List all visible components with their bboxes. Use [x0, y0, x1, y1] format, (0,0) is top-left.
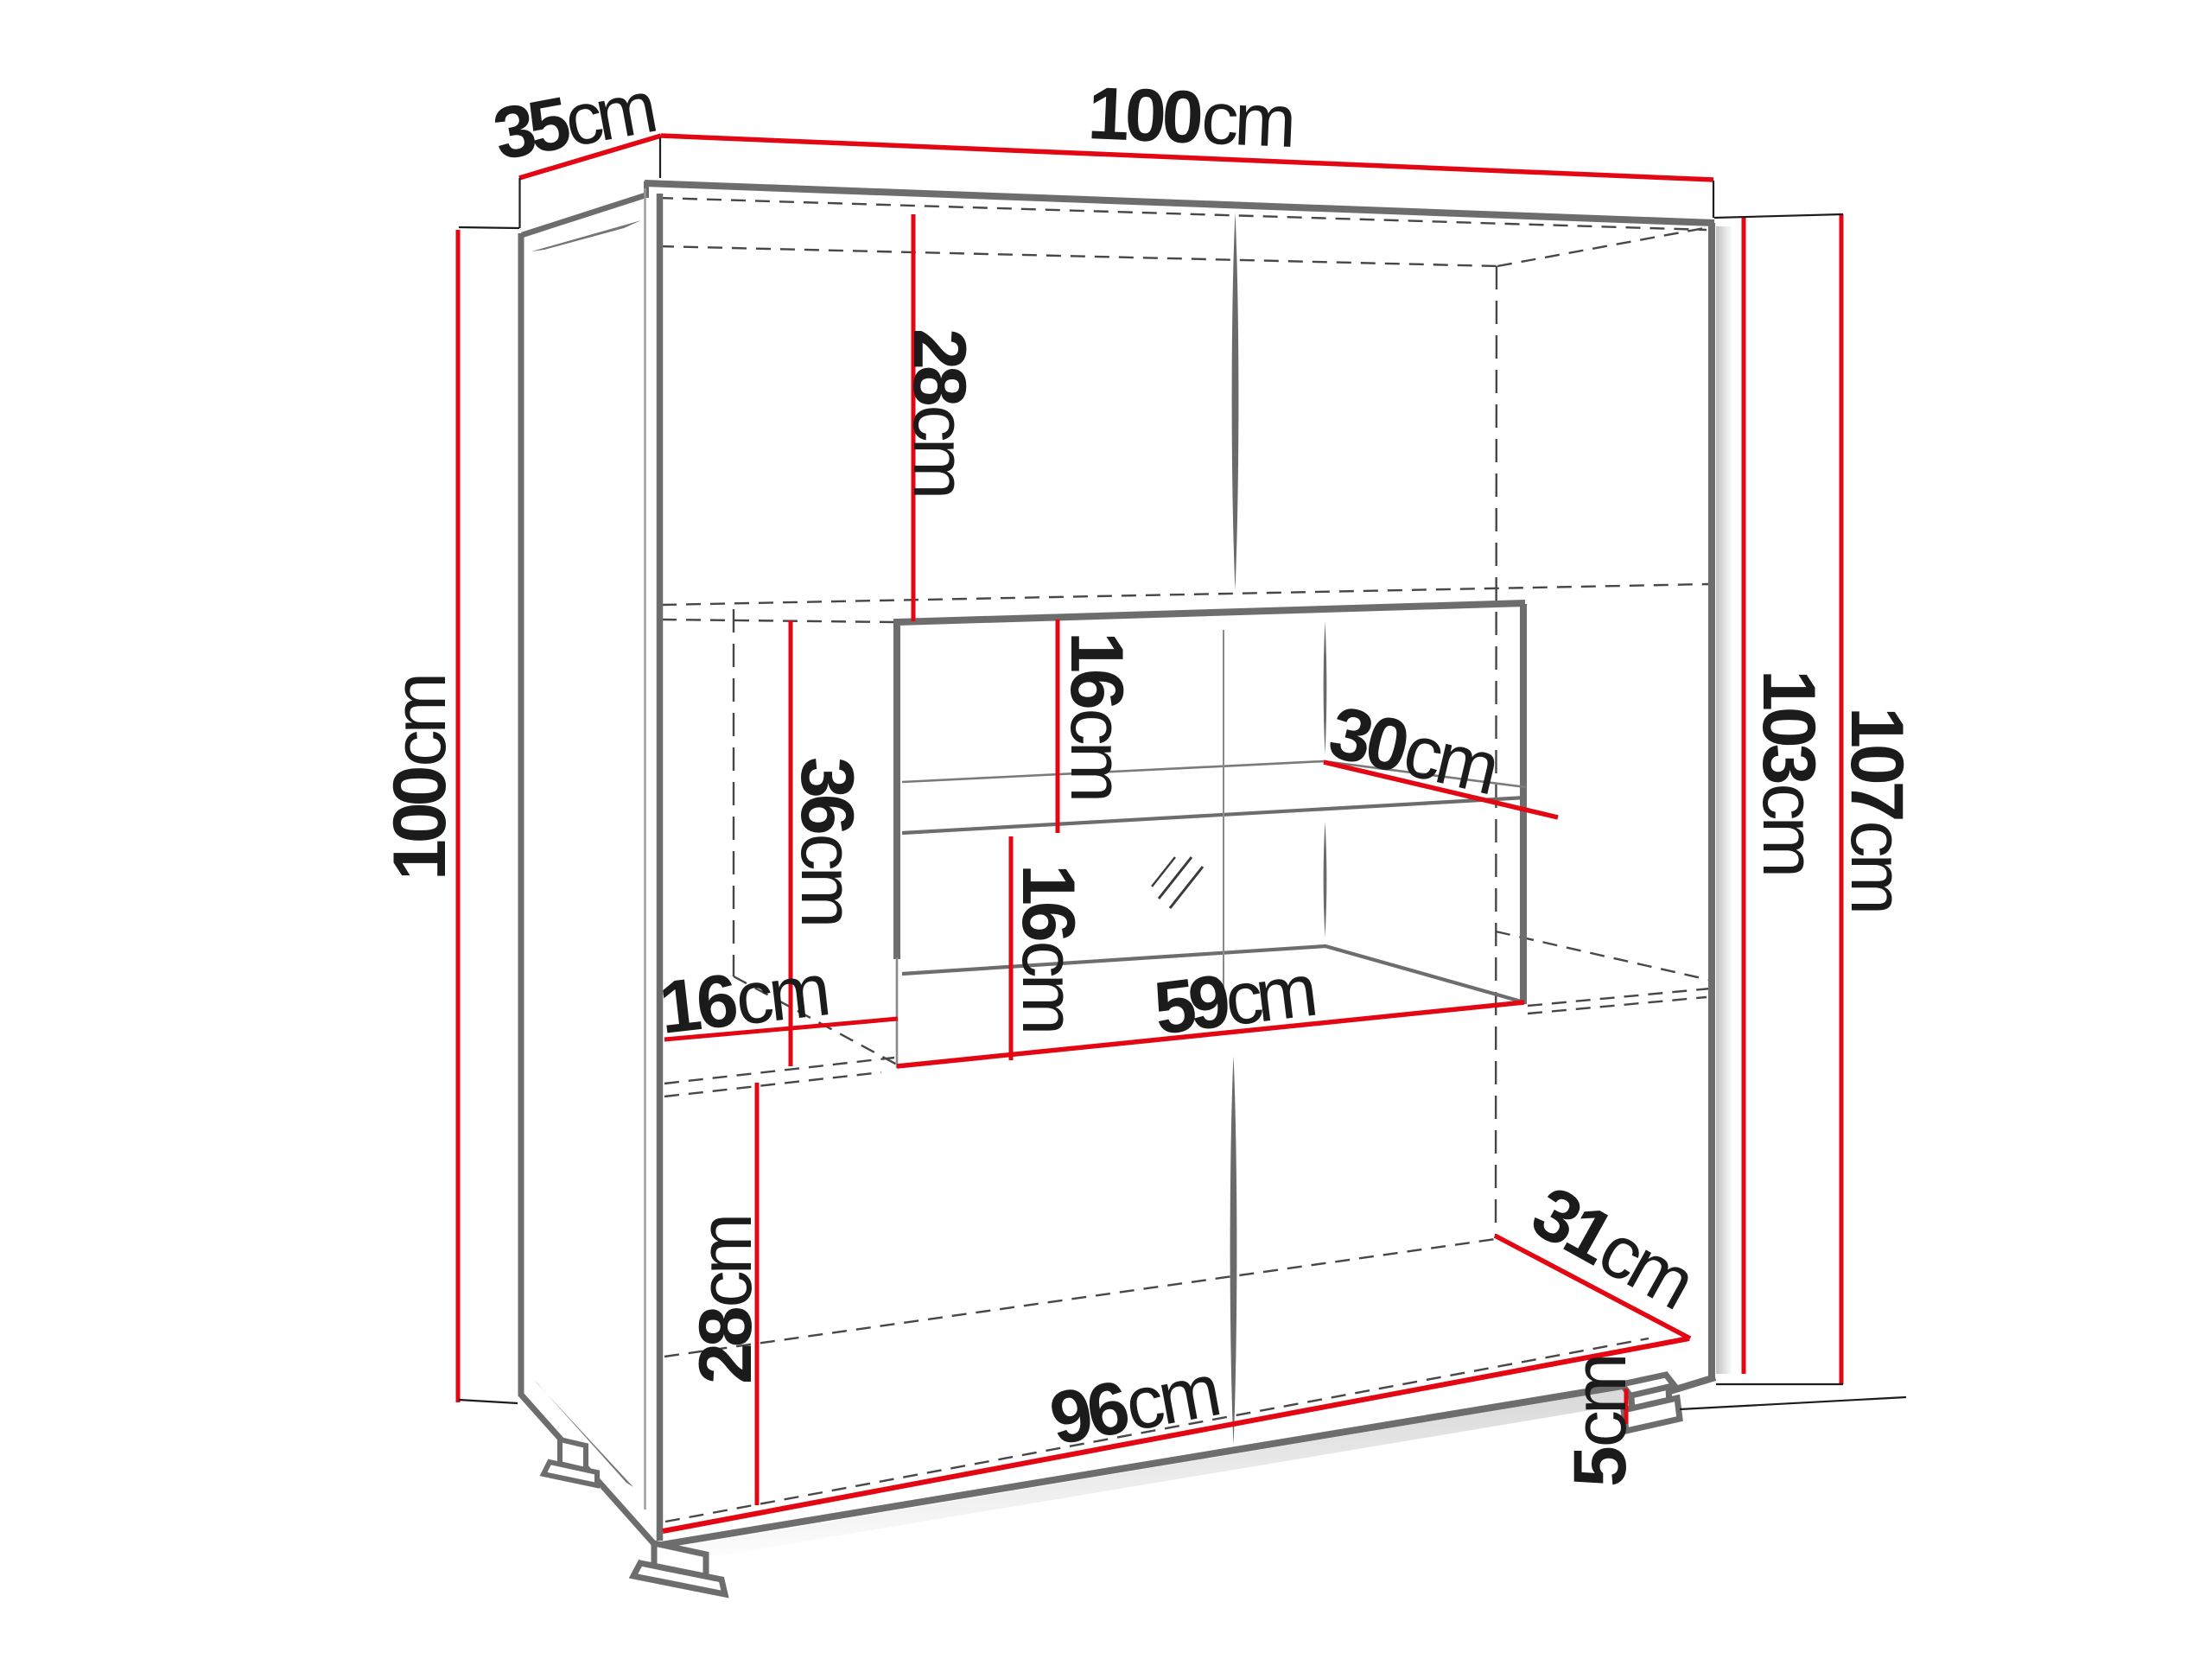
svg-text:107cm: 107cm: [1835, 707, 1918, 911]
svg-text:36cm: 36cm: [785, 757, 868, 924]
svg-text:16cm: 16cm: [1055, 632, 1138, 798]
svg-text:100cm: 100cm: [1086, 72, 1294, 163]
svg-text:16cm: 16cm: [1007, 864, 1090, 1031]
svg-text:5cm: 5cm: [1559, 1357, 1642, 1487]
svg-text:100cm: 100cm: [378, 677, 461, 880]
svg-text:28cm: 28cm: [684, 1217, 767, 1384]
svg-text:28cm: 28cm: [898, 328, 981, 495]
svg-text:103cm: 103cm: [1747, 670, 1830, 874]
